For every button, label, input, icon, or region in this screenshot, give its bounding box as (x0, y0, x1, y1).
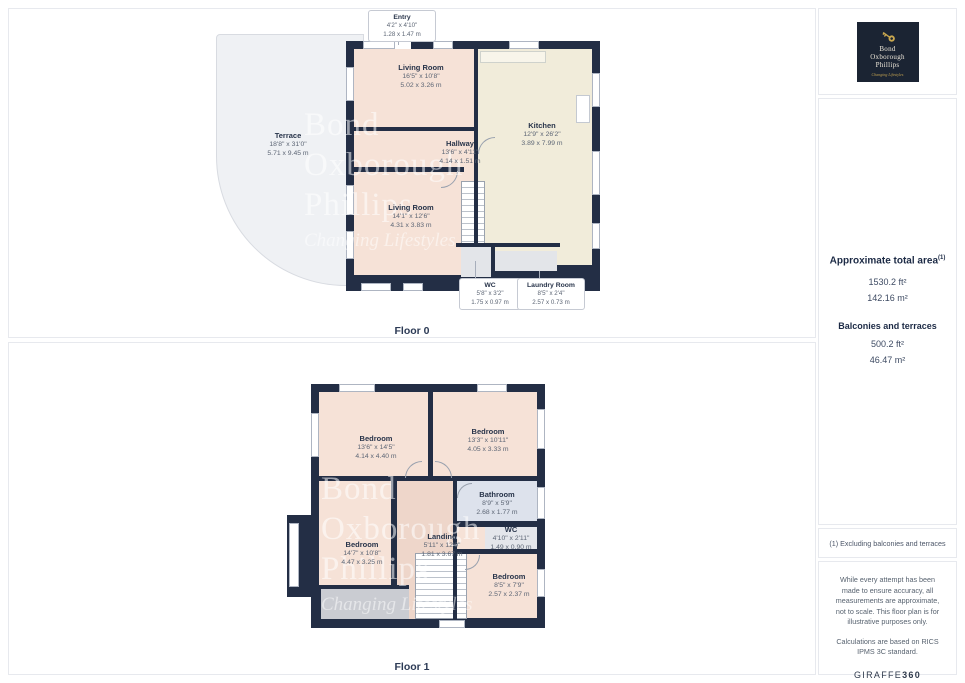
room-dims-metric: 3.89 x 7.99 m (494, 140, 590, 149)
logo-line: Bond (879, 45, 895, 53)
room-dims-imperial: 12'9" x 26'2" (494, 131, 590, 140)
window (339, 384, 375, 392)
disclaimer-text-2: Calculations are based on RICS IPMS 3C s… (832, 637, 943, 658)
window (509, 41, 539, 49)
window (346, 185, 354, 215)
room-dims-imperial: 8'5" x 2'4" (521, 290, 581, 298)
floor-0-panel: Bond Oxborough Phillips Changing Lifesty… (8, 8, 816, 338)
total-area-footnote-ref: (1) (938, 255, 945, 261)
window (592, 223, 600, 249)
room-label-living-room-bottom: Living Room 14'1" x 12'6" 4.31 x 3.83 m (361, 203, 461, 230)
floor-1-label: Floor 1 (9, 661, 815, 673)
balcony (321, 589, 409, 619)
room-dims-imperial: 14'1" x 12'6" (361, 213, 461, 222)
total-area-title: Approximate total area(1) (830, 255, 946, 266)
total-area-m: 142.16 m² (867, 290, 908, 306)
giraffe-360-text: 360 (902, 670, 921, 680)
total-area-title-text: Approximate total area (830, 256, 938, 267)
room-name: Entry (372, 13, 432, 22)
room-dims-metric: 1.28 x 1.47 m (372, 31, 432, 39)
room-dims-imperial: 4'2" x 4'10" (372, 22, 432, 30)
room-dims-metric: 1.81 x 3.67 m (392, 551, 492, 560)
window (346, 67, 354, 101)
room-label-living-room-top: Living Room 16'5" x 10'8" 5.02 x 3.26 m (366, 63, 476, 90)
balconies-ft: 500.2 ft² (871, 336, 904, 352)
room-label-bedroom-tr: Bedroom 13'3" x 10'11" 4.05 x 3.33 m (438, 427, 538, 454)
window (289, 523, 299, 587)
footnote-panel: (1) Excluding balconies and terraces (818, 528, 957, 558)
room-name: Bedroom (459, 572, 559, 582)
room-dims-metric: 4.05 x 3.33 m (438, 446, 538, 455)
window (592, 151, 600, 195)
room-dims-metric: 5.02 x 3.26 m (366, 82, 476, 91)
leader-line (475, 261, 476, 278)
kitchen-unit (576, 95, 590, 123)
disclaimer-text-1: While every attempt has been made to ens… (832, 575, 943, 628)
room-name: Bedroom (326, 434, 426, 444)
laundry-callout: Laundry Room 8'5" x 2'4" 2.57 x 0.73 m (517, 278, 585, 310)
logo-line: Oxborough (870, 53, 905, 61)
window (477, 384, 507, 392)
room-dims-metric: 1.75 x 0.97 m (463, 299, 517, 307)
wall-segment (319, 585, 409, 589)
window (346, 231, 354, 259)
room-name: Living Room (361, 203, 461, 213)
window (439, 620, 465, 628)
room-dims-metric: 4.14 x 4.40 m (326, 453, 426, 462)
room-dims-imperial: 13'6" x 4'11" (412, 149, 508, 158)
kitchen-counter (480, 51, 546, 63)
room-label-bedroom-tl: Bedroom 13'6" x 14'5" 4.14 x 4.40 m (326, 434, 426, 461)
staircase (461, 181, 485, 245)
room-name: Kitchen (494, 121, 590, 131)
logo-tagline: Changing Lifestyles (872, 72, 904, 77)
logo-panel: Bond Oxborough Phillips Changing Lifesty… (818, 8, 957, 95)
room-dims-imperial: 13'3" x 10'11" (438, 437, 538, 446)
room-label-hallway: Hallway 13'6" x 4'11" 4.14 x 1.51 m (412, 139, 508, 166)
room-dims-imperial: 5'8" x 3'2" (463, 290, 517, 298)
window (403, 283, 423, 291)
giraffe-text: GIRAFFE (854, 670, 902, 680)
room-dims-imperial: 8'9" x 5'9" (447, 500, 547, 509)
room-label-terrace: Terrace 18'8" x 31'0" 5.71 x 9.45 m (238, 131, 338, 158)
room-dims-metric: 2.57 x 0.73 m (521, 299, 581, 307)
room-dims-metric: 4.47 x 3.25 m (312, 559, 412, 568)
room-name: Living Room (366, 63, 476, 73)
room-label-bathroom: Bathroom 8'9" x 5'9" 2.68 x 1.77 m (447, 490, 547, 517)
room-dims-metric: 2.68 x 1.77 m (447, 509, 547, 518)
room-label-bedroom-br: Bedroom 8'5" x 7'9" 2.57 x 2.37 m (459, 572, 559, 599)
wall-segment (428, 392, 433, 476)
wc-callout: WC 5'8" x 3'2" 1.75 x 0.97 m (459, 278, 521, 310)
footnote-text: (1) Excluding balconies and terraces (819, 529, 956, 557)
leader-line (539, 271, 540, 278)
window (363, 41, 395, 49)
room-dims-metric: 4.31 x 3.83 m (361, 222, 461, 231)
giraffe360-logo: GIRAFFE360 (832, 670, 943, 681)
floor-0-label: Floor 0 (9, 325, 815, 337)
room-name: Laundry Room (521, 281, 581, 290)
room-label-landing: Landing 5'11" x 12'0" 1.81 x 3.67 m (392, 532, 492, 559)
room-dims-metric: 5.71 x 9.45 m (238, 150, 338, 159)
agency-logo: Bond Oxborough Phillips Changing Lifesty… (857, 22, 919, 82)
room-laundry-fill (495, 251, 557, 271)
room-terrace (216, 34, 364, 286)
balconies-title: Balconies and terraces (838, 321, 937, 331)
wall-segment (491, 247, 495, 277)
window (592, 73, 600, 107)
room-name: Terrace (238, 131, 338, 141)
window (537, 409, 545, 449)
room-dims-imperial: 18'8" x 31'0" (238, 141, 338, 150)
window (361, 283, 391, 291)
disclaimer-panel: While every attempt has been made to ens… (818, 561, 957, 675)
room-label-kitchen: Kitchen 12'9" x 26'2" 3.89 x 7.99 m (494, 121, 590, 148)
room-name: WC (463, 281, 517, 290)
room-dims-imperial: 13'6" x 14'5" (326, 444, 426, 453)
room-dims-imperial: 16'5" x 10'8" (366, 73, 476, 82)
window (433, 41, 453, 49)
wall-segment (319, 476, 537, 481)
room-name: Hallway (412, 139, 508, 149)
area-summary-panel: Approximate total area(1) 1530.2 ft² 142… (818, 98, 957, 525)
room-dims-imperial: 8'5" x 7'9" (459, 582, 559, 591)
balconies-m: 46.47 m² (870, 352, 906, 368)
key-icon (879, 27, 897, 45)
total-area-ft: 1530.2 ft² (868, 274, 906, 290)
wall-segment (354, 127, 478, 131)
room-dims-metric: 2.57 x 2.37 m (459, 591, 559, 600)
floor-1-panel: Bond Oxborough Phillips Changing Lifesty… (8, 342, 816, 675)
room-name: Bathroom (447, 490, 547, 500)
room-name: Bedroom (438, 427, 538, 437)
floorplan-page: Bond Oxborough Phillips Changing Lifesty… (0, 0, 965, 683)
room-dims-metric: 4.14 x 1.51 m (412, 158, 508, 167)
logo-line: Phillips (876, 61, 900, 69)
window (311, 413, 319, 457)
room-wc-fill (461, 247, 491, 277)
wall-segment (456, 243, 560, 247)
room-name: Landing (392, 532, 492, 542)
entry-callout: Entry 4'2" x 4'10" 1.28 x 1.47 m (368, 10, 436, 42)
room-dims-imperial: 5'11" x 12'0" (392, 542, 492, 551)
